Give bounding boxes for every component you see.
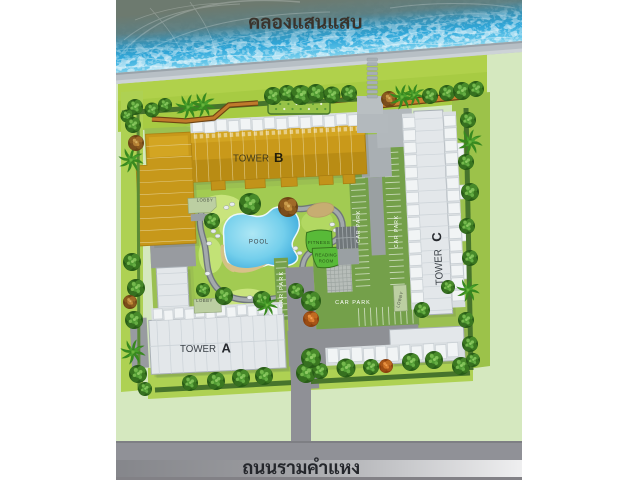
svg-text:FITNESS: FITNESS [308, 240, 330, 246]
svg-text:CAR PARK: CAR PARK [279, 271, 285, 308]
svg-text:LOBBY: LOBBY [197, 198, 214, 203]
svg-text:TOWER: TOWER [233, 152, 269, 164]
svg-text:C: C [429, 231, 444, 242]
svg-text:TOWER: TOWER [180, 343, 216, 355]
svg-text:CAR PARK: CAR PARK [356, 210, 362, 243]
svg-text:CAR PARK: CAR PARK [335, 300, 371, 306]
svg-text:LOBBY: LOBBY [196, 298, 213, 303]
svg-text:A: A [222, 341, 232, 356]
svg-text:POOL: POOL [249, 240, 269, 246]
svg-text:READING: READING [315, 253, 337, 258]
svg-text:TOWER: TOWER [432, 249, 446, 286]
svg-text:B: B [274, 150, 283, 165]
svg-text:CAR PARK: CAR PARK [394, 215, 400, 248]
svg-text:ROOM: ROOM [319, 259, 334, 264]
